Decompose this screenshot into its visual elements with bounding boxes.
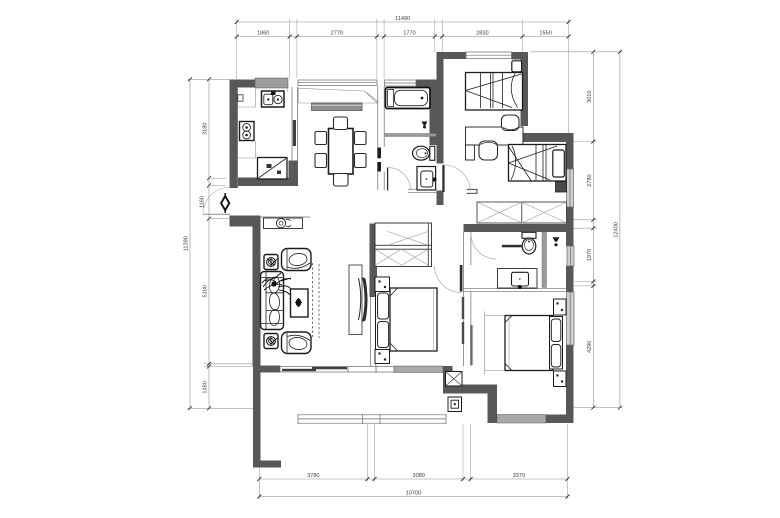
svg-text:1970: 1970 (587, 249, 593, 261)
svg-text:5100: 5100 (203, 285, 209, 297)
svg-text:11390: 11390 (184, 236, 190, 251)
svg-text:1160: 1160 (200, 196, 206, 208)
svg-text:10700: 10700 (406, 491, 422, 497)
svg-text:4290: 4290 (587, 341, 593, 353)
svg-text:1770: 1770 (403, 31, 415, 37)
svg-text:12400: 12400 (613, 222, 619, 238)
svg-text:3780: 3780 (307, 473, 319, 479)
svg-text:3370: 3370 (513, 473, 525, 479)
svg-text:1860: 1860 (257, 31, 269, 37)
svg-text:3180: 3180 (203, 122, 209, 134)
svg-text:2770: 2770 (331, 31, 343, 37)
svg-text:2830: 2830 (476, 31, 488, 37)
svg-text:1550: 1550 (539, 31, 551, 37)
svg-text:11490: 11490 (395, 16, 410, 22)
svg-text:3080: 3080 (412, 473, 424, 479)
svg-text:3010: 3010 (587, 90, 593, 102)
svg-text:1480: 1480 (203, 381, 209, 393)
svg-text:2780: 2780 (587, 174, 593, 186)
